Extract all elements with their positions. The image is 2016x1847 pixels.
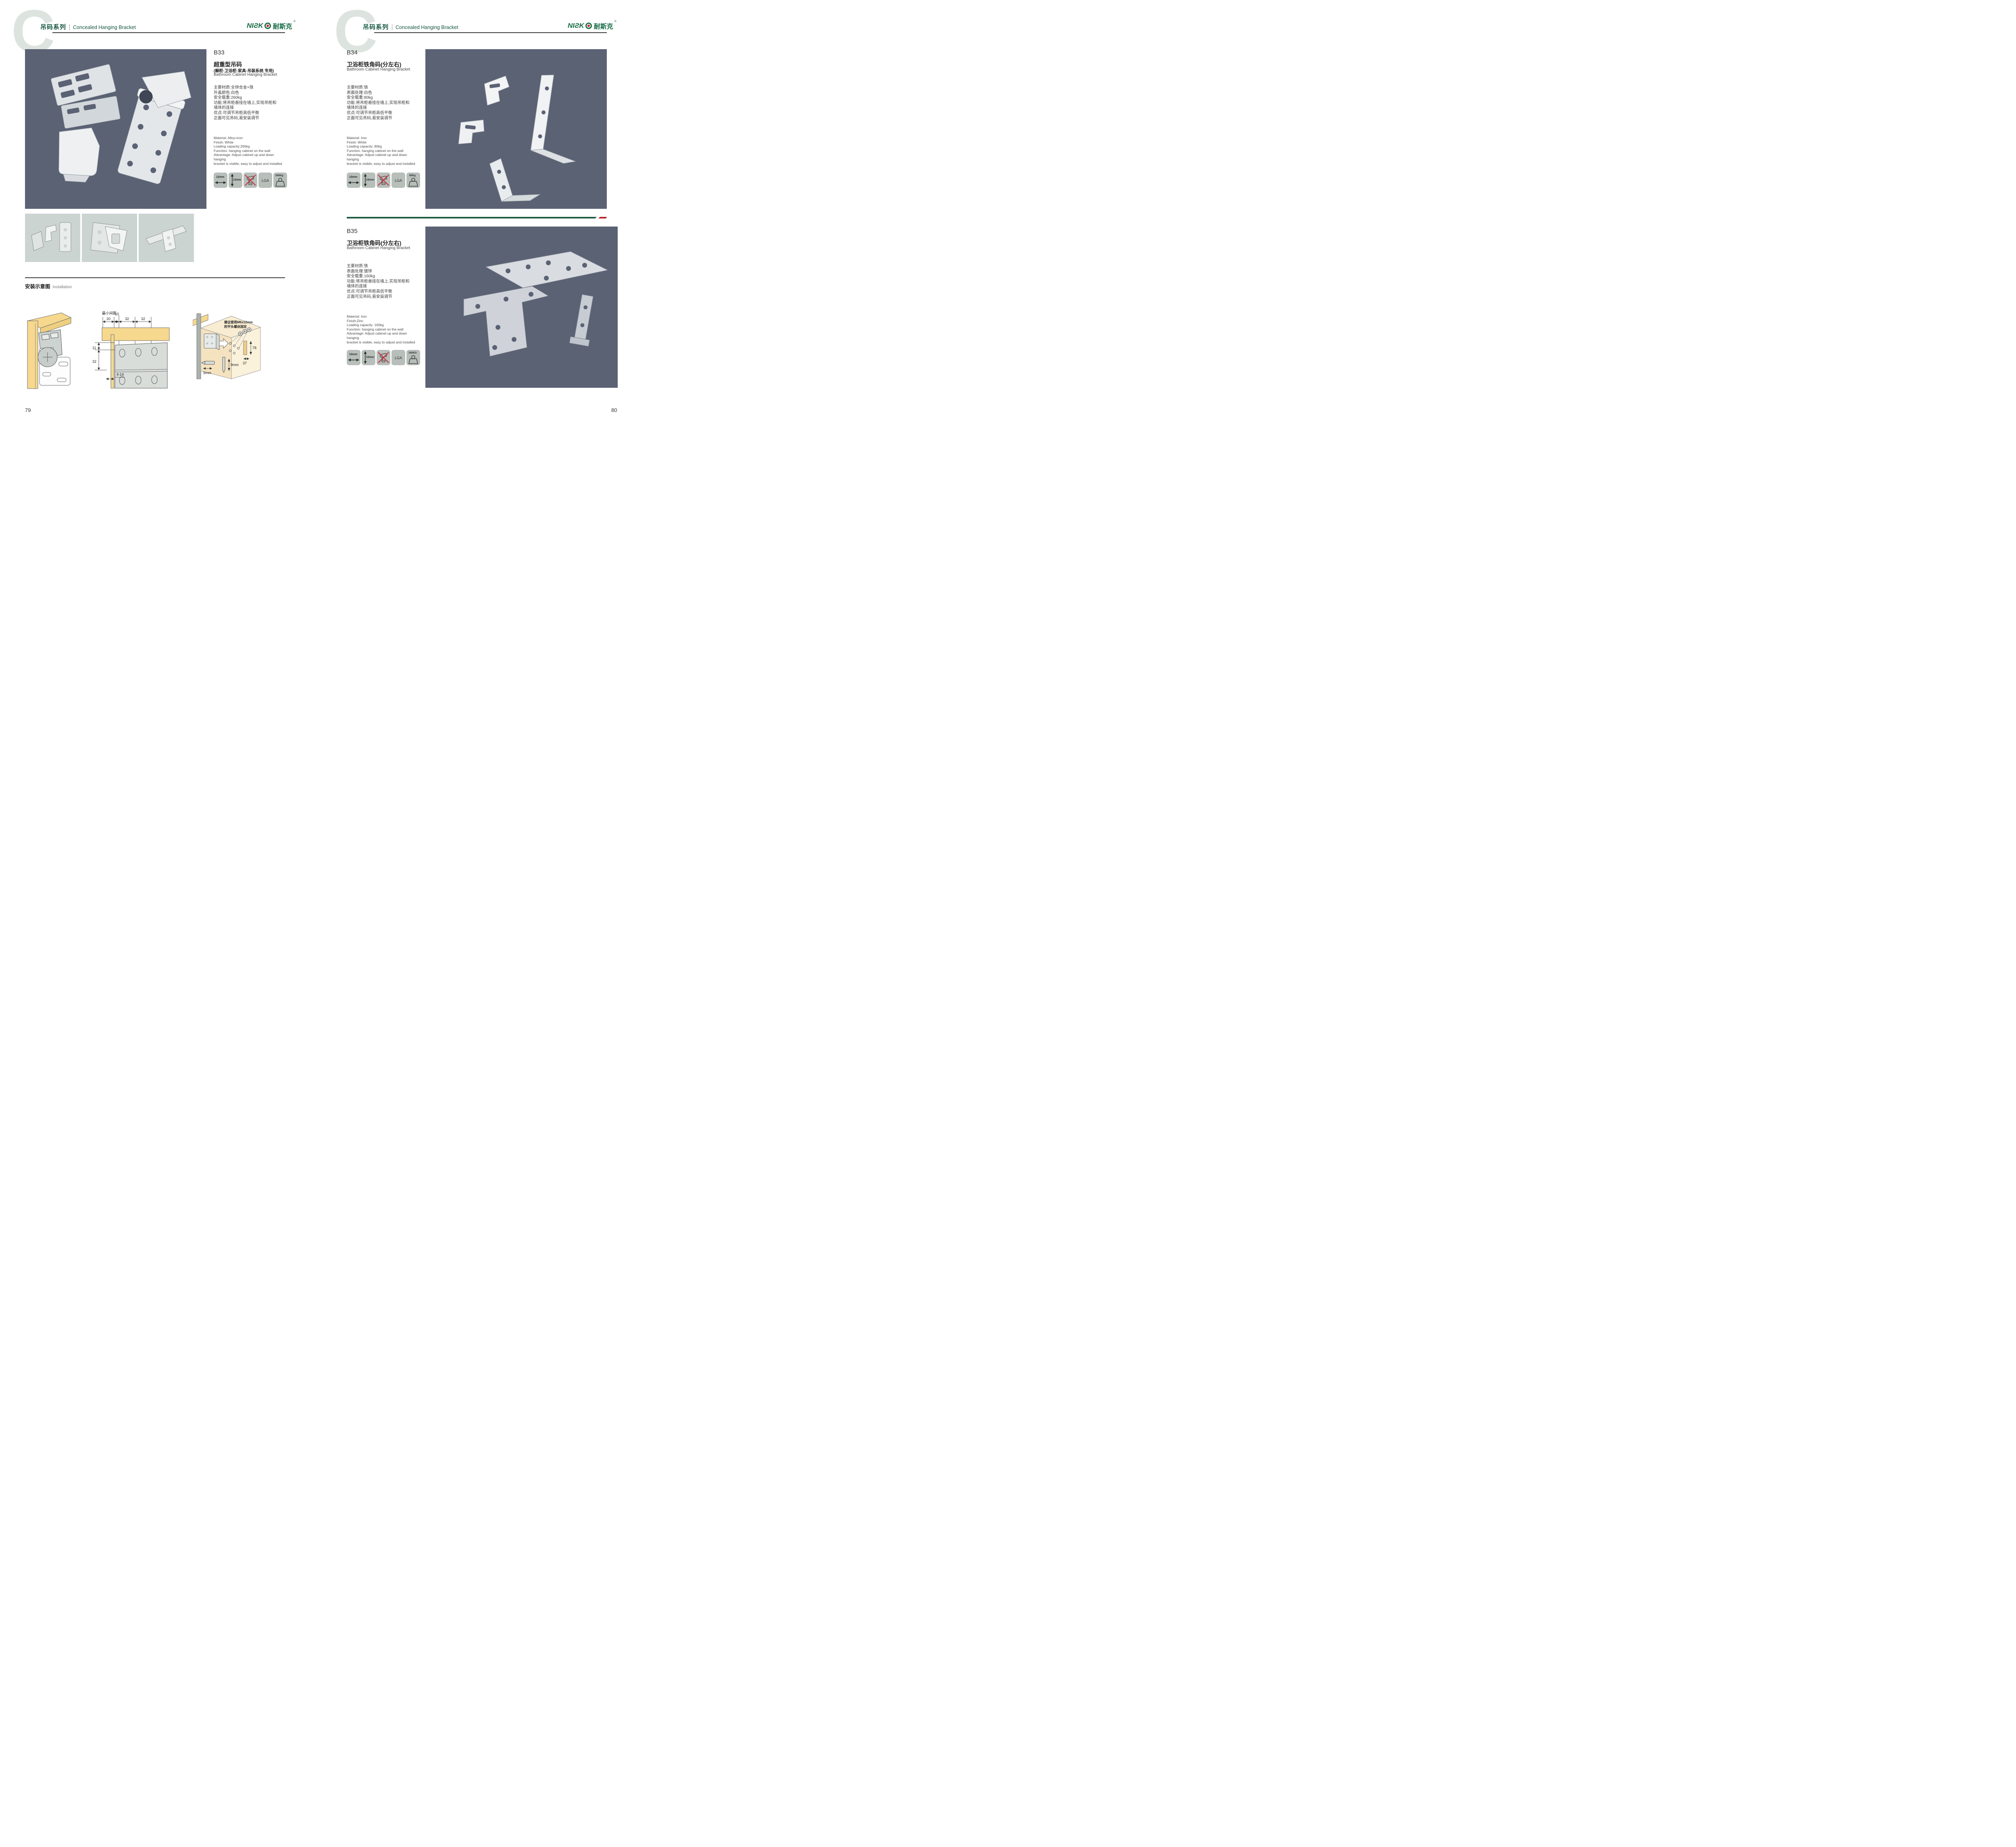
header-divider	[69, 24, 70, 30]
load-capacity-icon: 80Kg	[406, 173, 420, 188]
specs-cn-b34: 主要材质:铁 表面处理:白色 安全载重:80kg 功能:将吊柜悬挂在墙上,实现吊…	[347, 85, 419, 121]
installation-diagram-section: 最小间距 20 10 32 32 11 32	[91, 310, 171, 390]
page-number-right: 80	[611, 407, 617, 413]
icon-row-b34: 10mm 15mm LGA 80Kg	[347, 173, 420, 188]
product-code-b34: B34	[347, 49, 358, 56]
dim-37: 37	[243, 361, 247, 365]
product-photo-b35	[425, 227, 618, 388]
specs-en-b35: Material: Iron Finish:Zinc Loading capac…	[347, 314, 419, 344]
height-icon: 15mm	[362, 350, 375, 365]
section-separator-red	[598, 217, 607, 218]
no-drill-icon	[377, 350, 390, 365]
product-title-en-b34: Bathroom Cabinet Hanging Bracket	[347, 67, 410, 72]
installation-heading-cn: 安装示意图	[25, 284, 50, 289]
dim-min-gap: 最小间距	[102, 311, 117, 315]
b35-photo-illustration	[425, 227, 618, 388]
dim-9mm-b: 9mm	[231, 363, 239, 367]
dim-32c: 32	[92, 360, 96, 364]
load-capacity-icon: 260Kg	[273, 173, 287, 188]
dim-32b: 32	[141, 317, 145, 321]
series-title-cn-right: 吊码系列	[363, 24, 389, 31]
logo-target-icon	[264, 23, 271, 29]
page-header-left: 吊码系列Concealed Hanging Bracket	[40, 23, 136, 31]
no-drill-icon	[377, 173, 390, 188]
logo-target-icon-right	[585, 23, 592, 29]
installation-diagram-corner	[25, 310, 74, 390]
note-line2: 的平头螺丝固定	[224, 324, 247, 329]
installation-heading: 安装示意图Installation	[25, 282, 72, 290]
lga-cert-icon: LGA	[392, 173, 405, 188]
width-icon: 10mm	[347, 173, 360, 188]
section-separator-green	[347, 217, 597, 218]
b33-photo-illustration	[25, 49, 206, 209]
logo-latin-text-right: NIƧK	[568, 22, 584, 30]
product-code-b35: B35	[347, 228, 358, 235]
width-icon: 10mm	[347, 350, 360, 365]
specs-en-b34: Material: Iron Finish: White Loading cap…	[347, 136, 419, 166]
dim-78: 78	[252, 346, 256, 350]
series-title-en-right: Concealed Hanging Bracket	[396, 25, 458, 30]
icon-row-b33: 12mm 13mm LGA 260Kg	[214, 173, 287, 188]
installation-heading-en: Installation	[53, 285, 72, 289]
header-rule-right	[374, 32, 607, 33]
logo-latin-text: NIƧK	[247, 22, 263, 30]
registered-mark-right: ®	[614, 20, 616, 23]
brand-logo-right: NIƧK 耐斯克 ®	[568, 21, 616, 31]
height-icon: 13mm	[229, 173, 242, 188]
specs-cn-b35: 主要材质:铁 表面处理:镀锌 安全载重:160kg 功能:将吊柜悬挂在墙上,实现…	[347, 264, 419, 300]
series-title-en: Concealed Hanging Bracket	[73, 25, 136, 30]
logo-cn-text-right: 耐斯克	[594, 21, 613, 31]
no-drill-icon	[244, 173, 257, 188]
dim-32a: 32	[125, 317, 129, 321]
logo-cn-text: 耐斯克	[273, 21, 292, 31]
product-code-b33: B33	[214, 49, 225, 56]
registered-mark: ®	[294, 20, 296, 23]
installation-rule	[25, 277, 285, 278]
page-number-left: 79	[25, 407, 31, 413]
product-photo-b34	[425, 49, 607, 209]
product-title-en-b33: Bathroom Cabinet Hanging Bracket	[214, 73, 277, 77]
load-capacity-icon: 160KG	[406, 350, 420, 365]
thumbnail-1	[25, 214, 80, 262]
thumbnail-3	[139, 214, 194, 262]
lga-cert-icon: LGA	[392, 350, 405, 365]
specs-en-b33: Material: Alloy+iron Finish: White Loadi…	[214, 136, 286, 166]
b34-photo-illustration	[425, 49, 607, 209]
dim-20: 20	[106, 317, 110, 321]
product-title-en-b35: Bathroom Cabinet Hanging Bracket	[347, 246, 410, 250]
dim-9mm-a: 9mm	[203, 371, 211, 375]
width-icon: 12mm	[214, 173, 227, 188]
specs-cn-b33: 主要材质:全锌合金+铁 外盖颜色:白色 安全载重:260kg 功能:将吊柜悬挂在…	[214, 85, 286, 121]
series-title-cn: 吊码系列	[40, 24, 66, 31]
lga-cert-icon: LGA	[258, 173, 272, 188]
height-icon: 15mm	[362, 173, 375, 188]
icon-row-b35: 10mm 15mm LGA 160KG	[347, 350, 420, 365]
dim-11: 11	[92, 346, 96, 350]
page-header-right: 吊码系列Concealed Hanging Bracket	[363, 23, 458, 31]
dim-4-14: 4-14	[117, 372, 124, 376]
note-line1: 建议使用M6x12mm	[224, 320, 253, 324]
header-rule	[52, 32, 285, 33]
catalog-spread: C 吊码系列Concealed Hanging Bracket NIƧK 耐斯克…	[0, 0, 632, 432]
thumbnail-2	[82, 214, 137, 262]
installation-diagram-cabinet: 建议使用M6x12mm 的平头螺丝固定 78 37 9mm 9mm	[193, 310, 261, 381]
brand-logo: NIƧK 耐斯克 ®	[247, 21, 296, 31]
header-divider-right	[392, 24, 392, 30]
product-photo-b33	[25, 49, 206, 209]
dim-10: 10	[115, 312, 119, 316]
